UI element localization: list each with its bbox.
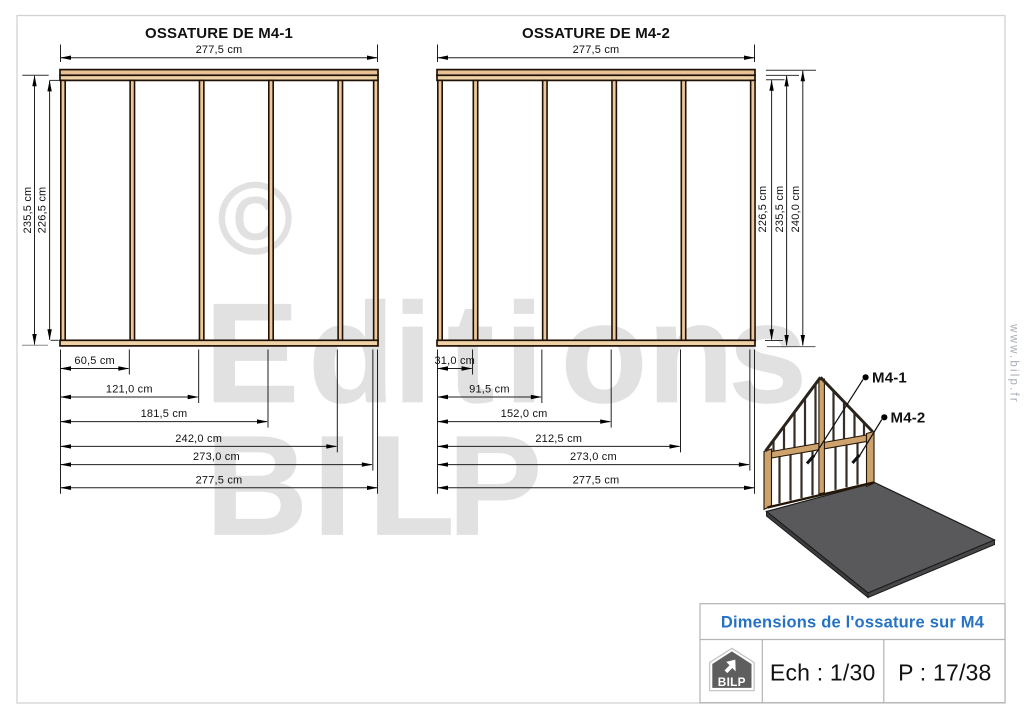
svg-text:152,0 cm: 152,0 cm [501,408,548,420]
svg-text:277,5 cm: 277,5 cm [573,44,620,56]
svg-text:M4-1: M4-1 [872,370,907,387]
svg-text:235,5 cm: 235,5 cm [22,187,34,234]
svg-text:OSSATURE DE M4-1: OSSATURE DE M4-1 [145,25,293,42]
svg-text:91,5 cm: 91,5 cm [469,384,510,396]
svg-text:277,5 cm: 277,5 cm [196,474,243,486]
svg-text:226,5 cm: 226,5 cm [37,187,49,234]
svg-text:Dimensions de l'ossature sur M: Dimensions de l'ossature sur M4 [721,614,985,632]
svg-text:P : 17/38: P : 17/38 [898,660,991,686]
svg-text:181,5 cm: 181,5 cm [141,408,188,420]
svg-text:©: © [218,163,292,275]
svg-text:273,0 cm: 273,0 cm [570,451,617,463]
svg-text:240,0 cm: 240,0 cm [790,186,802,233]
svg-text:www.bilp.fr: www.bilp.fr [1008,323,1020,404]
svg-text:BILP: BILP [206,407,543,566]
svg-text:60,5 cm: 60,5 cm [74,355,115,367]
svg-text:242,0 cm: 242,0 cm [175,433,222,445]
svg-text:Ech : 1/30: Ech : 1/30 [770,660,876,686]
svg-text:BILP: BILP [718,675,746,689]
svg-text:121,0 cm: 121,0 cm [106,384,153,396]
svg-text:277,5 cm: 277,5 cm [196,44,243,56]
svg-text:M4-2: M4-2 [891,410,926,427]
svg-text:OSSATURE DE M4-2: OSSATURE DE M4-2 [522,25,670,42]
svg-text:277,5 cm: 277,5 cm [573,474,620,486]
svg-text:235,5 cm: 235,5 cm [774,186,786,233]
svg-text:226,5 cm: 226,5 cm [757,186,769,233]
svg-text:212,5 cm: 212,5 cm [535,433,582,445]
svg-text:31,0 cm: 31,0 cm [434,355,475,367]
svg-text:273,0 cm: 273,0 cm [193,451,240,463]
